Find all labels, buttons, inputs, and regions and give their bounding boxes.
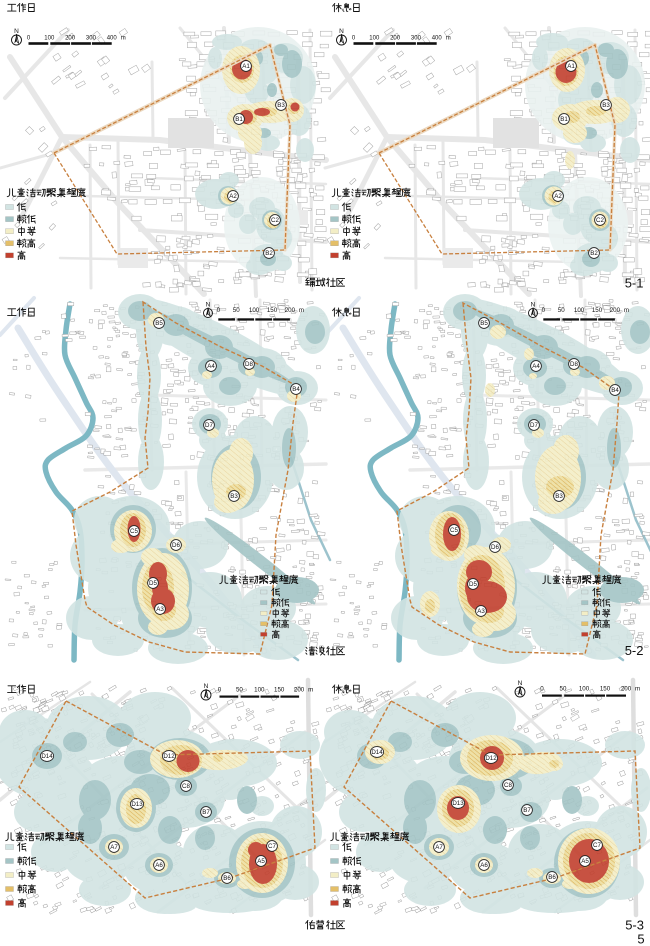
svg-text:D7: D7 (530, 422, 538, 429)
svg-text:D6: D6 (172, 542, 180, 549)
svg-text:A5: A5 (257, 858, 265, 865)
svg-text:A3: A3 (156, 606, 164, 613)
svg-text:B4: B4 (611, 387, 619, 394)
svg-text:100: 100 (369, 36, 380, 42)
svg-text:200: 200 (294, 687, 305, 694)
svg-text:B3: B3 (602, 102, 610, 109)
svg-text:5-1: 5-1 (625, 276, 644, 291)
svg-text:C7: C7 (268, 843, 276, 850)
svg-text:A5: A5 (581, 858, 589, 865)
svg-text:B7: B7 (523, 807, 531, 814)
svg-text:m: m (299, 307, 304, 314)
svg-text:D12: D12 (163, 753, 175, 760)
svg-text:0: 0 (218, 687, 222, 694)
svg-text:200: 200 (610, 307, 621, 314)
svg-text:D14: D14 (371, 749, 383, 756)
svg-text:B5: B5 (480, 320, 488, 327)
svg-text:150: 150 (274, 687, 285, 694)
svg-text:400: 400 (432, 36, 443, 42)
svg-text:C5: C5 (450, 527, 458, 534)
svg-text:D13: D13 (452, 800, 464, 807)
svg-text:300: 300 (86, 36, 97, 42)
svg-text:D8: D8 (570, 361, 578, 368)
svg-text:A1: A1 (567, 63, 575, 70)
svg-text:B7: B7 (202, 809, 210, 816)
svg-text:A7: A7 (110, 844, 118, 851)
svg-text:50: 50 (236, 687, 243, 694)
svg-text:150: 150 (600, 686, 611, 693)
svg-text:B2: B2 (265, 250, 273, 257)
svg-text:400: 400 (107, 36, 118, 42)
svg-text:C7: C7 (593, 842, 601, 849)
svg-text:150: 150 (592, 307, 603, 314)
svg-text:B6: B6 (223, 875, 231, 882)
svg-text:m: m (308, 687, 313, 694)
svg-text:300: 300 (411, 36, 422, 42)
svg-text:C8: C8 (504, 782, 512, 789)
svg-text:100: 100 (254, 687, 265, 694)
svg-text:100: 100 (44, 36, 55, 42)
svg-text:A2: A2 (554, 193, 562, 200)
svg-text:A2: A2 (229, 193, 237, 200)
svg-text:D13: D13 (131, 801, 143, 808)
svg-text:C8: C8 (182, 783, 190, 790)
svg-text:A1: A1 (242, 63, 250, 70)
svg-text:200: 200 (621, 686, 632, 693)
svg-text:A7: A7 (435, 844, 443, 851)
svg-text:200: 200 (65, 36, 76, 42)
svg-text:5: 5 (637, 931, 644, 946)
svg-text:D5: D5 (469, 581, 477, 588)
svg-text:C2: C2 (271, 217, 279, 224)
svg-text:D14: D14 (41, 753, 53, 760)
svg-text:m: m (624, 307, 629, 314)
svg-text:0: 0 (542, 307, 546, 314)
svg-text:D7: D7 (205, 422, 213, 429)
svg-text:B3: B3 (555, 493, 563, 500)
svg-text:D5: D5 (149, 580, 157, 587)
svg-text:m: m (121, 36, 126, 42)
svg-text:5-2: 5-2 (625, 643, 644, 658)
svg-text:m: m (446, 36, 451, 42)
svg-text:200: 200 (285, 307, 296, 314)
svg-text:5-3: 5-3 (625, 918, 644, 933)
svg-text:D12: D12 (485, 755, 497, 762)
svg-text:D8: D8 (245, 361, 253, 368)
svg-text:150: 150 (267, 307, 278, 314)
svg-text:200: 200 (390, 36, 401, 42)
svg-text:100: 100 (574, 307, 585, 314)
svg-text:B1: B1 (560, 116, 568, 123)
svg-text:50: 50 (560, 686, 567, 693)
svg-text:50: 50 (558, 307, 565, 314)
svg-text:100: 100 (249, 307, 260, 314)
svg-text:B2: B2 (590, 250, 598, 257)
svg-text:A4: A4 (207, 363, 215, 370)
svg-text:B3: B3 (277, 102, 285, 109)
svg-text:m: m (635, 686, 640, 693)
svg-text:A6: A6 (480, 862, 488, 869)
svg-text:B5: B5 (155, 320, 163, 327)
svg-text:D6: D6 (491, 544, 499, 551)
svg-text:A3: A3 (477, 608, 485, 615)
svg-text:0: 0 (540, 686, 544, 693)
svg-text:50: 50 (233, 307, 240, 314)
svg-text:B6: B6 (548, 874, 556, 881)
svg-text:A4: A4 (532, 363, 540, 370)
svg-text:100: 100 (579, 686, 590, 693)
svg-text:C2: C2 (596, 217, 604, 224)
svg-text:B4: B4 (292, 386, 300, 393)
svg-text:B3: B3 (230, 493, 238, 500)
svg-text:B1: B1 (235, 116, 243, 123)
svg-text:0: 0 (217, 307, 221, 314)
svg-text:A6: A6 (155, 862, 163, 869)
svg-text:C5: C5 (130, 528, 138, 535)
